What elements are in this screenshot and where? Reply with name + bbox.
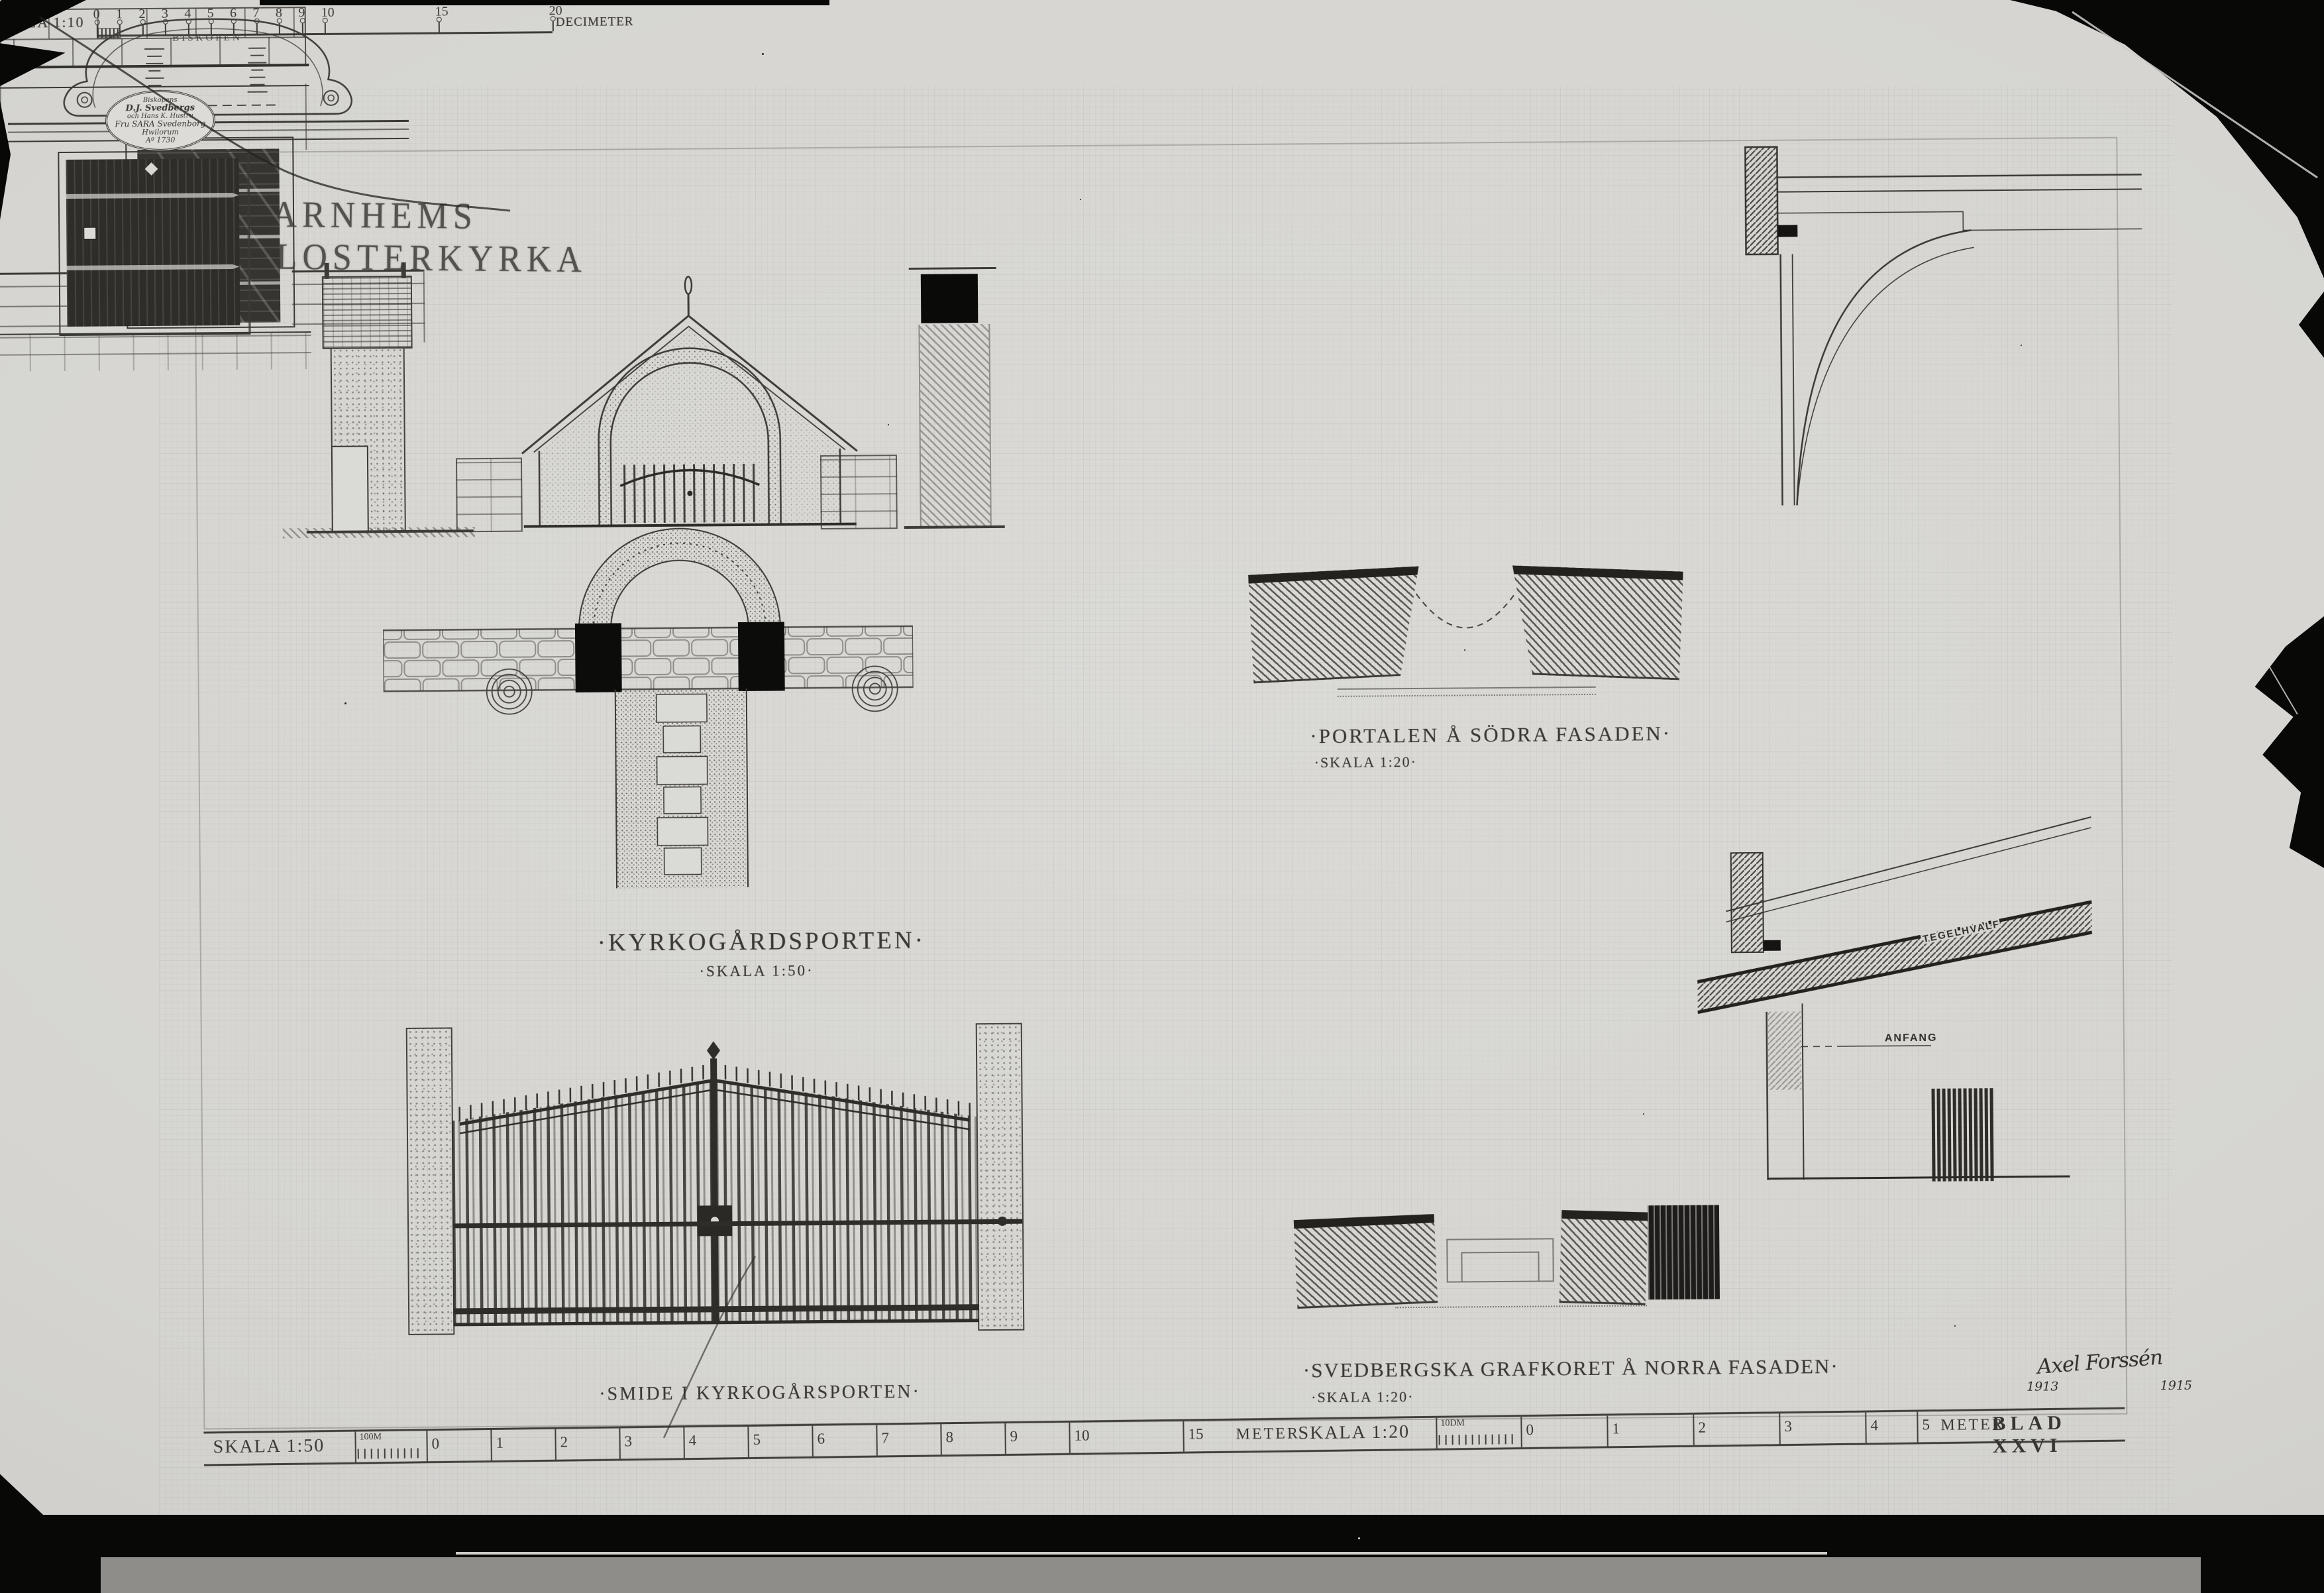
- graf-plan-step-inner: [1461, 1252, 1539, 1282]
- dust-speck: [762, 53, 764, 55]
- scale20-tick: 3: [1779, 1413, 1792, 1444]
- smide-scale-unit: DECIMETER: [556, 15, 634, 30]
- graf-bottom-line: [1768, 1176, 2070, 1179]
- signature-year-right: 1915: [2160, 1378, 2193, 1393]
- section-vault-curve-outer: [1795, 230, 1973, 505]
- photographed-drawing-sheet: VARNHEMS KLOSTERKYRKA: [0, 0, 2324, 1593]
- dust-speck-white: [1358, 1537, 1360, 1539]
- graf-plan-wall-right: [1559, 1210, 1648, 1305]
- section-wall-line-inner: [1793, 254, 1795, 506]
- graf-hatched-post: [1731, 853, 1764, 952]
- label-portalen: ·PORTALEN Å SÖDRA FASADEN·: [1310, 722, 1671, 748]
- section-vault-curve-inner: [1795, 247, 1976, 505]
- portal-plan-wall-left: [1248, 566, 1424, 683]
- graf-wall-inner: [1802, 1003, 1803, 1180]
- sheet-number: BLAD XXVI: [1992, 1411, 2125, 1458]
- dust-speck: [1080, 199, 1081, 200]
- graf-wall-hatch: [1768, 1011, 1802, 1089]
- grafkoret-strap-hinge-1: [66, 193, 239, 199]
- section-beam-step: [1777, 210, 2142, 231]
- volute-right-inner: [328, 95, 334, 101]
- grafkoret-plan-drawing: [1295, 1198, 1720, 1324]
- drawing-sheet-content: VARNHEMS KLOSTERKYRKA: [0, 0, 2324, 1593]
- portal-plan-drawing: [1250, 556, 1682, 718]
- graf-dark-hatch-block: [1931, 1088, 1995, 1181]
- dust-speck-white: [0, 0, 1, 1]
- section-beam-line-2: [1777, 189, 2142, 192]
- graf-plan-dark-block: [1648, 1205, 1720, 1299]
- scale20-tick: 5: [1917, 1411, 1930, 1442]
- scale20-tick: 0: [1520, 1417, 1534, 1447]
- portal-plan-threshold: [1338, 687, 1596, 697]
- graf-roof-line-2: [1725, 828, 2091, 922]
- dust-speck: [1464, 649, 1465, 651]
- portal-wall-right: [292, 270, 425, 344]
- grafkoret-section-drawing: TEGELHVALF ANFANG: [1696, 808, 2096, 1185]
- grafkoret-strap-hinge-2: [67, 264, 240, 270]
- section-beam-line-1: [1777, 174, 2142, 177]
- dust-speck: [888, 424, 889, 425]
- grafkoret-lock-box: [83, 227, 96, 240]
- door-swing-arc: [1416, 593, 1516, 628]
- smide-tick-number: 15: [435, 4, 449, 19]
- portal-section-drawing: [1737, 141, 2147, 509]
- signature-years: 1913 1915: [2027, 1378, 2192, 1394]
- graf-black-bracket: [1764, 940, 1781, 951]
- grafkoret-door-diamond: [145, 162, 158, 176]
- plate-edge-black-top: [260, 0, 829, 5]
- portal-plan-opening: [1409, 577, 1522, 671]
- label-smide: ·SMIDE I KYRKOGÅRSPORTEN·: [588, 1382, 932, 1405]
- label-svedbergska: ·SVEDBERGSKA GRAFKORET Å NORRA FASADEN·: [1303, 1354, 1839, 1382]
- plaque-line: Aº 1730: [146, 136, 176, 144]
- grafkoret-door-leaf: [66, 158, 240, 327]
- label-portalen-scale: ·SKALA 1:20·: [1314, 753, 1418, 771]
- label-anfang: ANFANG: [1885, 1032, 1938, 1044]
- dust-speck: [344, 702, 346, 704]
- graf-roof-line-1: [1725, 817, 2091, 911]
- graf-wall-outer: [1767, 1012, 1768, 1180]
- dust-speck: [1954, 1325, 1956, 1327]
- section-wall-line-outer: [1781, 254, 1783, 506]
- grafkoret-pilaster-right: [246, 150, 307, 332]
- memorial-plaque-oval: BiskopensD.J. Svedbergsoch Hans K. Hustr…: [105, 89, 216, 151]
- label-svedbergska-scale: ·SKALA 1:20·: [1311, 1388, 1414, 1406]
- section-hatched-jamb: [1745, 147, 1777, 254]
- grafkoret-pilaster-left: [0, 152, 60, 334]
- scale20-tick: 1: [1607, 1415, 1620, 1446]
- grafkoret-rubble-base: [0, 331, 311, 372]
- signature-year-left: 1913: [2027, 1379, 2059, 1394]
- dust-speck: [1643, 1113, 1644, 1115]
- portal-plan-wall-right: [1508, 565, 1683, 680]
- plate-bottom-white-line: [456, 1552, 1827, 1555]
- graf-plan-wall-left: [1294, 1214, 1438, 1309]
- scale20-tick: 2: [1693, 1415, 1706, 1445]
- smide-tick: 20: [553, 21, 554, 31]
- dust-speck: [2021, 345, 2022, 346]
- scale20-tick: 4: [1865, 1412, 1878, 1443]
- graf-plan-dotted-line: [1395, 1305, 1647, 1308]
- volute-right: [324, 91, 339, 105]
- plate-bottom-gray-strip: [101, 1557, 2201, 1593]
- anfang-underline: [1837, 1046, 1931, 1046]
- grafkoret-frieze: BiskopensD.J. Svedbergsoch Hans K. Hustr…: [0, 83, 307, 152]
- smide-tick: 15: [439, 22, 440, 32]
- section-black-bracket: [1777, 225, 1797, 237]
